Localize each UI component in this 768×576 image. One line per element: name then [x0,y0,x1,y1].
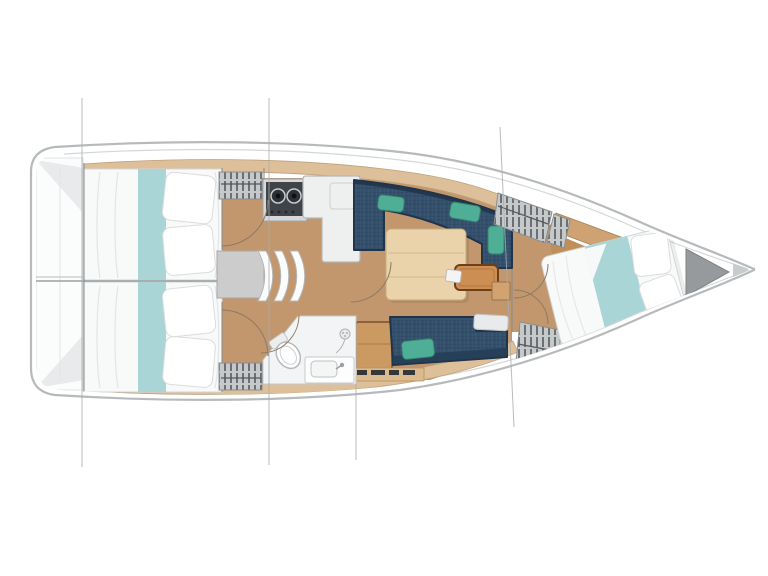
galley-stove [263,179,307,221]
shelf-with-items [352,368,424,381]
bed-runner [138,169,166,280]
salon-table [386,229,466,300]
instrument-device [445,269,462,283]
pillow [630,232,672,277]
stern-platform [36,158,84,390]
engine-compartment [217,251,264,298]
aft-berth-starboard [83,282,222,392]
pillow [162,285,217,338]
settee-cushion [401,338,435,359]
bed-runner [138,282,166,392]
floor-plan-canvas [0,0,768,576]
pillow [162,172,217,225]
yacht-floor-plan [0,0,768,576]
sofa-cushion [377,194,405,212]
sofa-cushion [488,226,504,254]
hanging-locker-aft-starboard [219,363,262,390]
wooden-cabinet [356,322,392,370]
sink-vanity [305,357,354,383]
aft-berth-port [83,169,222,280]
companionway-steps [258,251,305,301]
settee-headrest [474,314,509,331]
pillow [162,336,216,388]
hanging-locker-aft-port [219,172,262,199]
pillow [162,224,216,276]
